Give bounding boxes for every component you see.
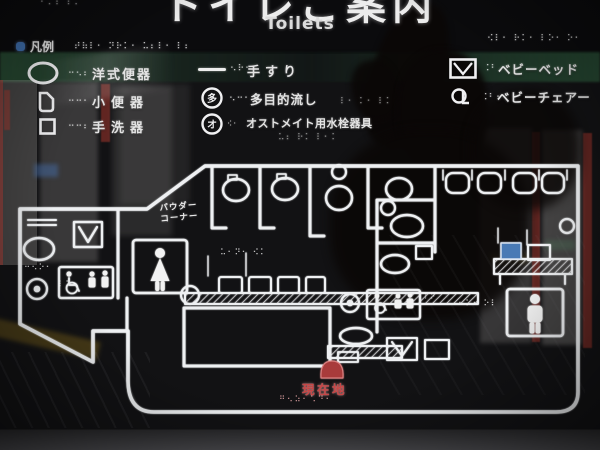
island-counter — [184, 308, 330, 366]
map-braille: ⠒⠢⠕⠂ — [24, 263, 53, 273]
sign-title-english: Toilets — [265, 14, 334, 34]
womens-toilet-sign — [133, 240, 187, 293]
mens-toilet-sign — [507, 289, 563, 336]
map-braille: ⠇⠅⠂ — [58, 280, 80, 290]
floor-plan: ⠒⠢⠕⠂ ⠇⠅⠂ ⠥⠂⠝⠂ ⠪⠅ ⠂⠅⠂ ⠕⠇ ⠇⠕ — [0, 0, 600, 450]
parent-child-icon — [102, 270, 109, 287]
tactile-toilet-map-photo: トイレご案内 Toilets ⠂⠄⠆ ⠆⠄ 凡例 ⠞⠷⠇⠂ ⠝⠗⠅⠂ ⠥⠆⠇⠂ … — [0, 0, 600, 450]
you-are-here-marker — [321, 361, 343, 378]
man-pictogram — [528, 294, 543, 334]
urinal-row — [443, 170, 567, 193]
powder-corner-label: パウダー コーナー — [159, 200, 199, 225]
sink-circles — [27, 165, 574, 312]
left-baby-bed — [74, 222, 102, 247]
map-braille: ⠥⠂⠝⠂ ⠪⠅ — [220, 248, 267, 258]
map-braille: ⠇⠕ — [424, 293, 436, 301]
handrail — [28, 220, 56, 225]
toilet-fixtures — [24, 174, 423, 344]
right-counter — [494, 228, 572, 284]
you-are-here-braille: ⠛⠢⠵⠂⠡⠙⠂ — [279, 395, 333, 405]
woman-pictogram — [151, 248, 170, 291]
map-braille: ⠂⠅⠂ ⠕⠇ — [458, 299, 498, 309]
ostomate-person-icon — [89, 271, 96, 287]
